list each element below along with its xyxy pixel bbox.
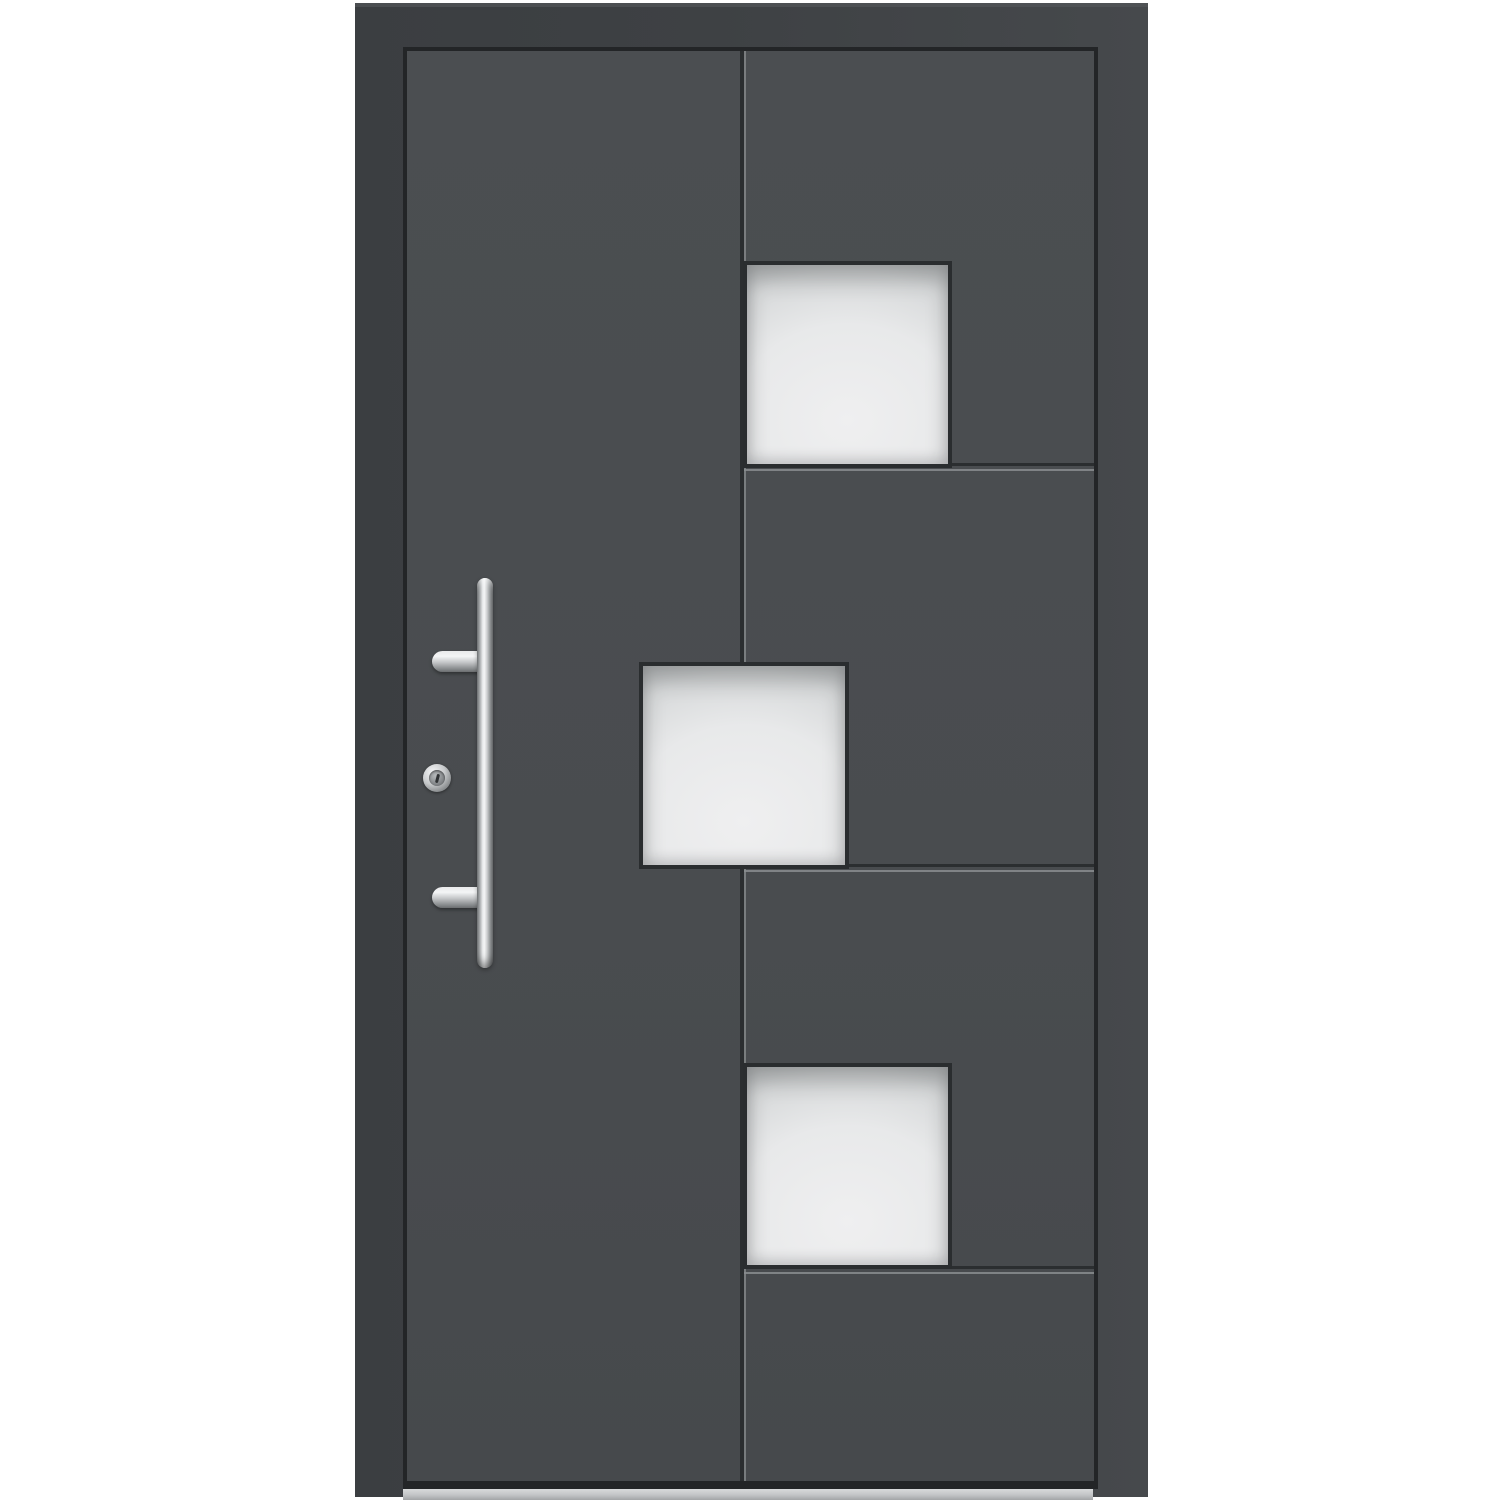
door-threshold-sill: [403, 1489, 1093, 1500]
handle-mount-upper: [432, 651, 480, 672]
horizontal-groove-1-highlight: [744, 469, 1094, 471]
lock-cylinder-core: [429, 770, 445, 786]
keyhole: [434, 773, 439, 782]
door-product-photo: [0, 0, 1500, 1500]
horizontal-groove-3-highlight: [744, 1272, 1094, 1274]
door-frame-top-edge: [355, 3, 1148, 7]
frosted-glass-panel-bottom: [743, 1063, 952, 1269]
bar-handle: [477, 578, 493, 968]
lock-cylinder: [423, 764, 451, 792]
handle-mount-lower: [432, 887, 480, 908]
horizontal-groove-2-highlight: [744, 870, 1094, 872]
frosted-glass-panel-middle: [639, 662, 849, 869]
frosted-glass-panel-top: [743, 261, 952, 468]
